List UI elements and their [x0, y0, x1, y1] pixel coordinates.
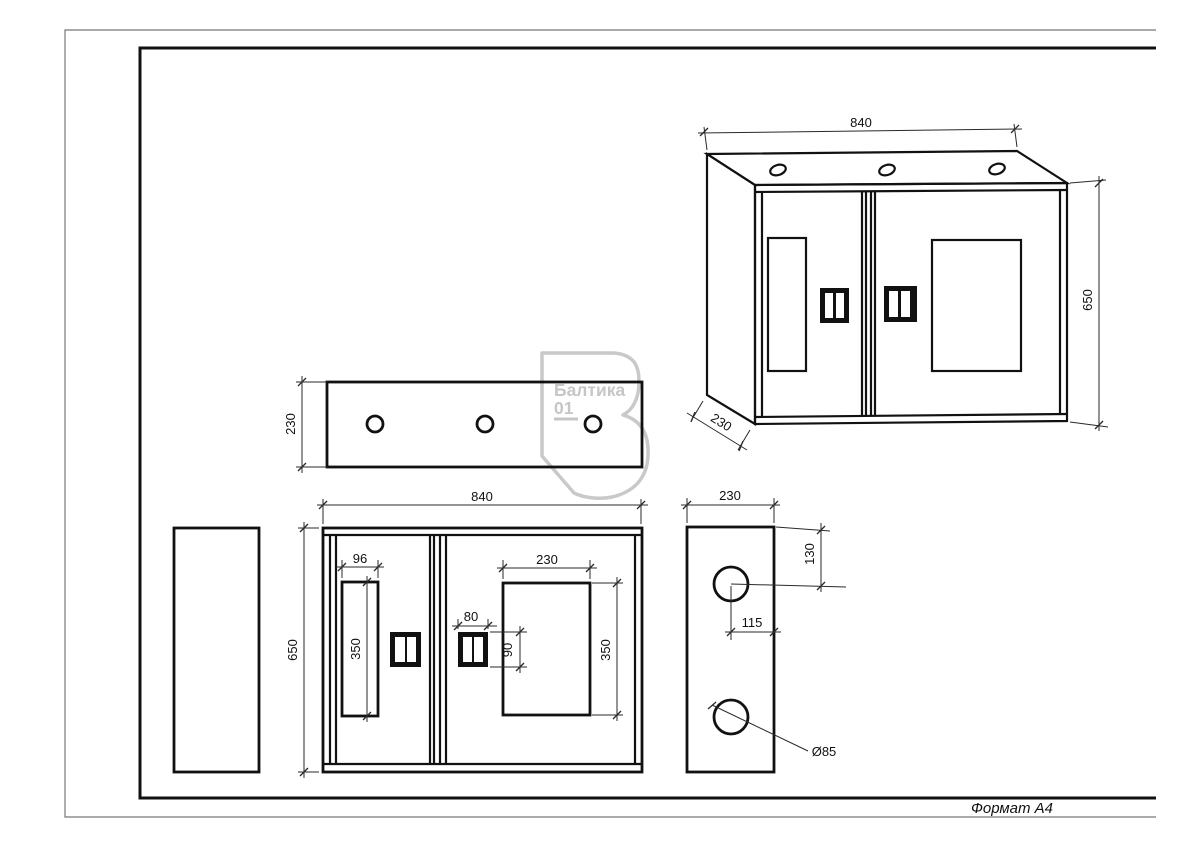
- front-width-dimension: 840: [317, 489, 648, 524]
- side-panel-outline: [174, 528, 259, 772]
- front-handle-height-dimension: 90: [490, 626, 527, 673]
- front-right-window-width-dimension: 230: [497, 552, 597, 579]
- top-view-hole: [367, 416, 383, 432]
- front-left-window-height-dimension: 350: [348, 576, 371, 722]
- side-view-bottom-hole: [714, 700, 748, 734]
- front-handle-height-label: 90: [500, 643, 515, 657]
- drawing-canvas: Формат А4 Балтика 01: [0, 0, 1200, 848]
- format-label: Формат А4: [971, 800, 1053, 817]
- front-height-dim-label: 650: [285, 639, 300, 661]
- front-left-door-handle: [390, 632, 421, 667]
- iso-width-dimension: 840: [698, 115, 1022, 150]
- page-borders: Формат А4: [65, 30, 1156, 817]
- outer-page-border: [65, 30, 1156, 817]
- front-right-door-window: [503, 583, 590, 715]
- side-view: 230 130 115 Ø85: [681, 488, 846, 772]
- iso-inner-bottom-line: [755, 414, 1067, 417]
- iso-height-dim-label: 650: [1080, 289, 1095, 311]
- top-view-depth-dimension: 230: [283, 376, 327, 473]
- side-width-dim-label: 230: [719, 488, 741, 503]
- iso-inner-top-line: [755, 190, 1067, 192]
- iso-left-door-window: [768, 238, 806, 371]
- front-width-dim-label: 840: [471, 489, 493, 504]
- iso-height-dimension: 650: [1070, 176, 1108, 431]
- iso-top-hole: [769, 163, 787, 177]
- drawing-sheet: Формат А4 Балтика 01: [0, 0, 1200, 848]
- front-right-window-width-label: 230: [536, 552, 558, 567]
- side-hole-diameter-label: Ø85: [812, 744, 837, 759]
- front-left-window-width-dimension: 96: [336, 551, 384, 578]
- front-left-window-width-label: 96: [353, 551, 367, 566]
- front-handle-width-dimension: 80: [452, 609, 497, 630]
- front-handle-width-label: 80: [464, 609, 478, 624]
- front-right-door-handle: [458, 632, 488, 667]
- front-height-dimension: 650: [285, 522, 319, 778]
- side-hole-center-label: 115: [742, 615, 763, 630]
- side-panel-view: [174, 528, 259, 772]
- front-right-window-height-dimension: 350: [592, 577, 623, 721]
- front-right-window-height-label: 350: [598, 639, 613, 661]
- top-view-hole: [477, 416, 493, 432]
- front-view: 840 650 96 350: [285, 489, 648, 778]
- front-left-window-height-label: 350: [348, 638, 363, 660]
- iso-left-face: [707, 154, 755, 424]
- side-width-dimension: 230: [681, 488, 780, 523]
- top-view-hole: [585, 416, 601, 432]
- iso-depth-dimension: 230: [687, 401, 750, 451]
- iso-depth-dim-label: 230: [708, 410, 734, 434]
- iso-width-dim-label: 840: [850, 115, 872, 130]
- top-view-depth-dim-label: 230: [283, 413, 298, 435]
- iso-top-hole: [988, 162, 1006, 176]
- watermark-number: 01: [554, 398, 574, 418]
- isometric-view: 840 650 230: [687, 115, 1108, 451]
- iso-top-hole: [878, 163, 896, 177]
- iso-right-door-window: [932, 240, 1021, 371]
- iso-right-door-handle: [884, 286, 917, 322]
- iso-left-door-handle: [820, 288, 849, 323]
- side-hole-offset-label: 130: [802, 543, 817, 565]
